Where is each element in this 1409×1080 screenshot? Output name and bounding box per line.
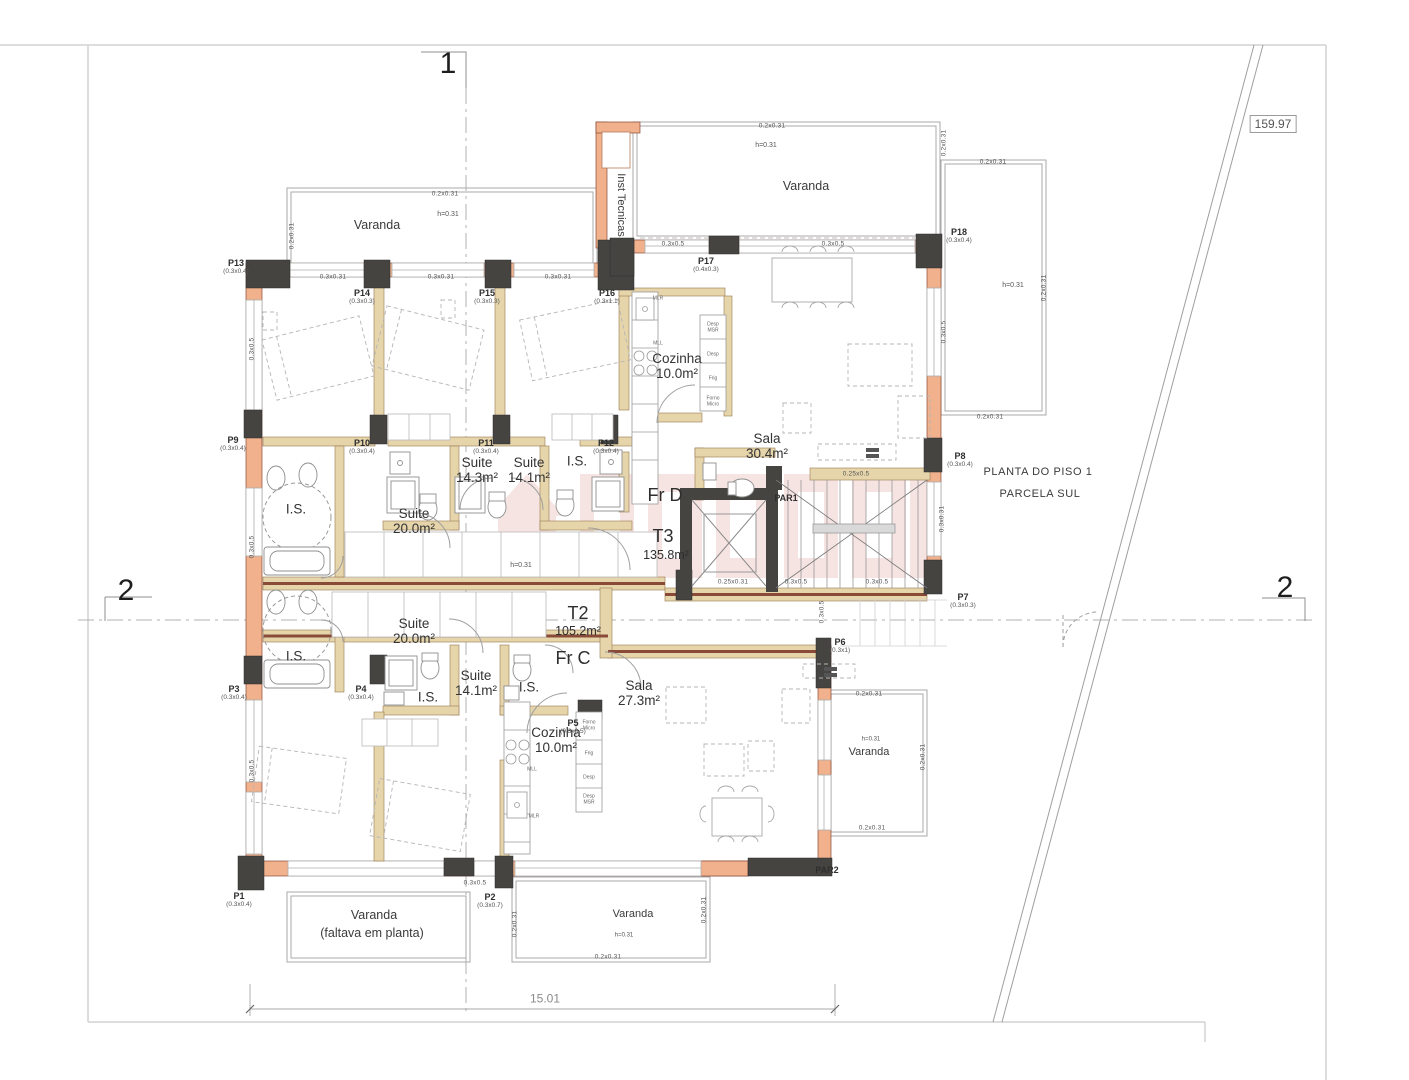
plan-title: PARCELA SUL (1000, 488, 1081, 500)
door-label: P6(0.3x1) (830, 637, 850, 655)
appliance-label: Frig (585, 751, 594, 757)
appliance-label: Desp MSR (583, 795, 595, 806)
dimension-label: 0.2x0.31 (700, 897, 707, 924)
dimension-label: 0.2x0.31 (977, 413, 1004, 420)
unit-label: T2 (567, 603, 588, 623)
door-label: P10(0.3x0.4) (349, 438, 375, 456)
section-marker: 2 (1277, 571, 1294, 605)
dimension-label: 0.2x0.31 (1040, 275, 1047, 302)
door-label: PAR1 (774, 493, 797, 503)
dimension-label: 0.3x0.5 (248, 536, 255, 559)
room-label: Suite 20.0m² (393, 506, 435, 536)
dimension-label: 0.25x0.31 (718, 578, 748, 585)
dimension-label: 0.3x0.5 (248, 760, 255, 783)
unit-label: 105.2m² (555, 624, 601, 638)
plan-labels: 122PLANTA DO PISO 1PARCELA SULVarandaVar… (0, 0, 1409, 1080)
area-label: (faltava em planta) (320, 926, 424, 940)
room-label: Sala 27.3m² (618, 678, 660, 708)
height-label: h=0.31 (615, 933, 634, 940)
door-label: P7(0.3x0.3) (950, 592, 976, 610)
door-label: P16(0.3x1.1) (594, 288, 620, 306)
height-label: h=0.31 (1002, 282, 1024, 290)
dimension-label: 0.25x0.5 (843, 470, 870, 477)
plan-title: PLANTA DO PISO 1 (983, 466, 1092, 478)
unit-label: T3 (652, 526, 673, 546)
height-label: h=0.31 (510, 562, 532, 570)
appliance-label: Desp (583, 775, 595, 781)
door-label: P8(0.3x0.4) (947, 451, 973, 469)
area-label: Varanda (613, 908, 654, 920)
door-label: P13(0.3x0.4) (223, 258, 249, 276)
appliance-label: Desp (707, 352, 719, 358)
unit-label: 135.8m² (643, 548, 689, 562)
dimension-label: 0.3x0.5 (662, 240, 685, 247)
dimension-label: 0.2x0.31 (759, 122, 786, 129)
room-label: Suite 14.1m² (508, 455, 550, 485)
dimension-label: 0.2x0.31 (432, 190, 459, 197)
door-label: P11(0.3x0.4) (473, 438, 499, 456)
room-label: Cozinha 10.0m² (652, 351, 702, 381)
dimension-label: 0.3x0.5 (866, 578, 889, 585)
dimension-label: 0.3x0.5 (464, 879, 487, 886)
height-label: h=0.31 (755, 142, 777, 150)
door-label: P18(0.3x0.4) (946, 227, 972, 245)
door-label: P2(0.3x0.7) (477, 892, 503, 910)
floor-plan: 122PLANTA DO PISO 1PARCELA SULVarandaVar… (0, 0, 1409, 1080)
door-label: P9(0.3x0.4) (220, 435, 246, 453)
door-label: P14(0.3x0.3) (349, 288, 375, 306)
room-label: Sala 30.4m² (746, 431, 788, 461)
door-label: P1(0.3x0.4) (226, 891, 252, 909)
section-marker: 2 (118, 574, 135, 608)
door-label: PAR2 (815, 865, 838, 875)
room-label: I.S. (286, 648, 306, 663)
area-label: Inst Tecnicas (615, 173, 627, 236)
appliance-label: Frig (709, 376, 718, 382)
room-label: I.S. (418, 689, 438, 704)
room-label: I.S. (286, 501, 306, 516)
area-label: Varanda (783, 179, 829, 193)
door-label: P12(0.3x0.4) (593, 438, 619, 456)
total-dimension-label: 15.01 (530, 992, 560, 1005)
room-label: Suite 20.0m² (393, 616, 435, 646)
boundary-elevation-label: 159.97 (1250, 115, 1297, 133)
dimension-label: 0.2x0.31 (919, 744, 926, 771)
area-label: Varanda (351, 908, 397, 922)
area-label: Varanda (849, 746, 890, 758)
unit-label: Fr C (556, 648, 591, 668)
height-label: h=0.31 (862, 737, 881, 744)
dimension-label: 0.2x0.31 (940, 130, 947, 157)
dimension-label: 0.2x0.31 (595, 953, 622, 960)
dimension-label: 0.2x0.31 (856, 690, 883, 697)
dimension-label: 0.3x0.5 (822, 240, 845, 247)
appliance-label: MLL (527, 767, 537, 773)
appliance-label: MLR (653, 296, 664, 302)
door-label: P4(0.3x0.4) (348, 684, 374, 702)
door-label: P3(0.3x0.4) (221, 684, 247, 702)
dimension-label: 0.2x0.31 (859, 824, 886, 831)
dimension-label: 0.3x0.31 (938, 506, 945, 533)
room-label: I.S. (519, 679, 539, 694)
dimension-label: 0.3x0.5 (818, 601, 825, 624)
appliance-label: MLR (529, 814, 540, 820)
unit-label: Fr D (648, 485, 683, 505)
appliance-label: Desp MSR (707, 323, 719, 334)
door-label: P5(0.3x0.5) (560, 718, 586, 736)
dimension-label: 0.3x0.5 (785, 578, 808, 585)
dimension-label: 0.3x0.31 (320, 273, 347, 280)
door-label: P15(0.3x0.3) (474, 288, 500, 306)
appliance-label: Forno Micro (706, 397, 719, 408)
area-label: Varanda (354, 218, 400, 232)
section-marker: 1 (440, 47, 457, 81)
appliance-label: MLL (653, 341, 663, 347)
dimension-label: 0.3x0.5 (248, 338, 255, 361)
room-label: Suite 14.3m² (456, 455, 498, 485)
dimension-label: 0.3x0.31 (428, 273, 455, 280)
dimension-label: 0.3x0.31 (545, 273, 572, 280)
door-label: P17(0.4x0.3) (693, 256, 719, 274)
room-label: Suite 14.1m² (455, 668, 497, 698)
room-label: I.S. (567, 453, 587, 468)
dimension-label: 0.2x0.31 (511, 911, 518, 938)
dimension-label: 0.2x0.31 (288, 223, 295, 250)
height-label: h=0.31 (437, 211, 459, 219)
dimension-label: 0.3x0.5 (940, 321, 947, 344)
dimension-label: 0.2x0.31 (980, 158, 1007, 165)
